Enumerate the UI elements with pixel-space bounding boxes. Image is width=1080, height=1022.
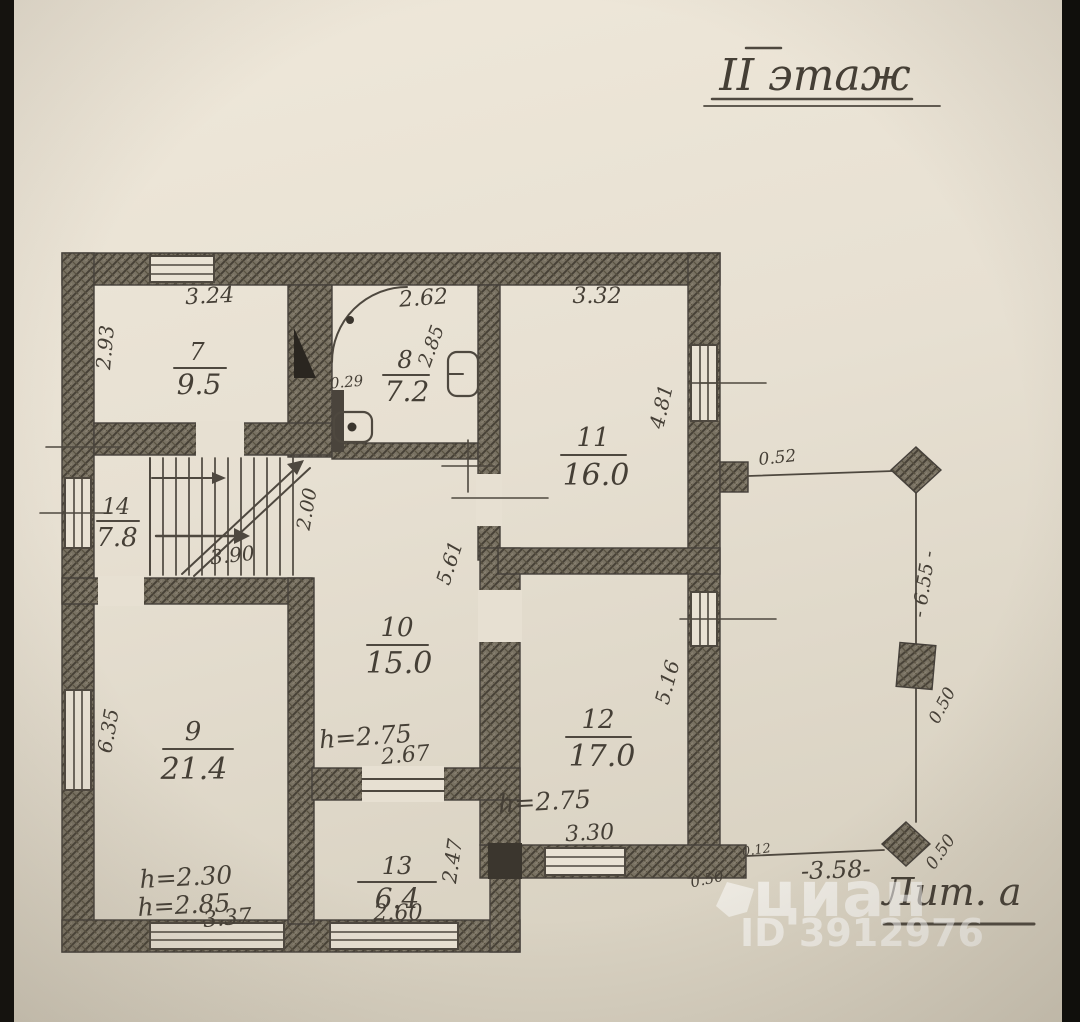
photo-edge-left [0,0,14,1022]
floorplan-drawing: 7 9.5 8 7.2 9 21.4 10 15.0 11 16.0 12 17… [0,0,1080,1022]
scanned-floorplan-photo: 7 9.5 8 7.2 9 21.4 10 15.0 11 16.0 12 17… [0,0,1080,1022]
photo-vignette [0,0,1080,1022]
photo-edge-right [1062,0,1080,1022]
